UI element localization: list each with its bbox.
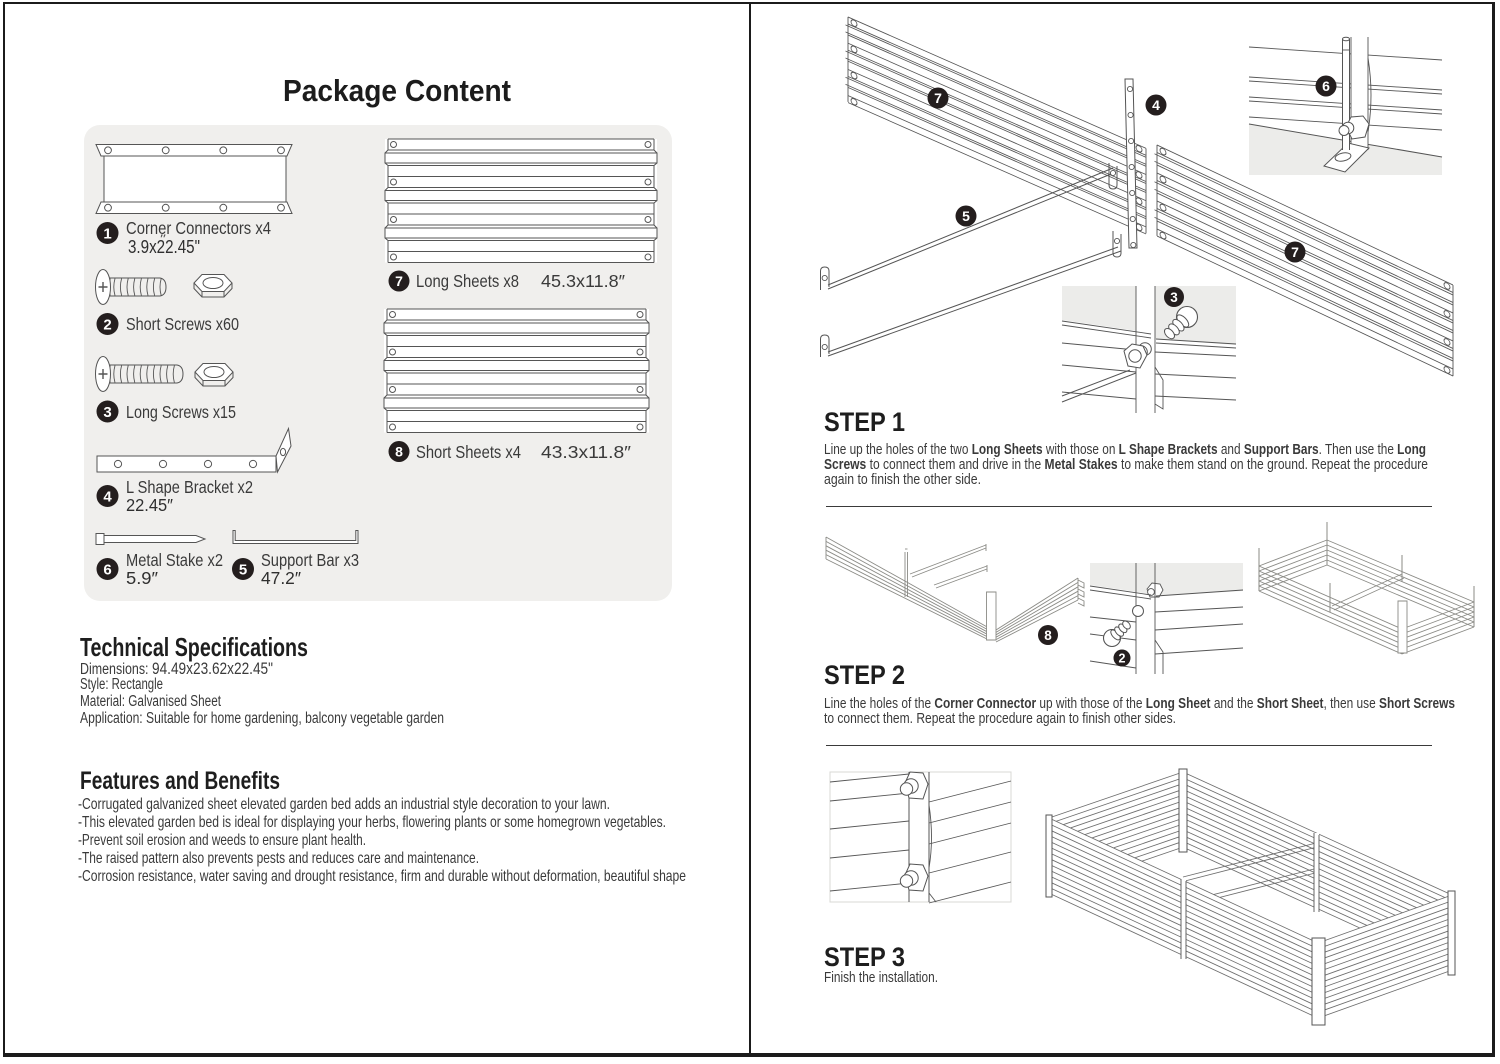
svg-text:3: 3 (103, 404, 111, 421)
svg-text:3: 3 (1170, 290, 1178, 305)
svg-text:1: 1 (103, 225, 111, 242)
svg-text:8: 8 (1044, 628, 1052, 643)
svg-text:8: 8 (395, 444, 403, 460)
svg-text:7: 7 (1291, 244, 1299, 260)
svg-text:4: 4 (103, 488, 112, 505)
svg-text:5: 5 (962, 208, 970, 224)
svg-text:2: 2 (1119, 652, 1126, 666)
svg-text:5: 5 (239, 561, 247, 578)
svg-text:6: 6 (103, 561, 111, 578)
svg-text:4: 4 (1152, 97, 1160, 113)
svg-text:7: 7 (934, 90, 942, 106)
svg-text:7: 7 (395, 273, 403, 289)
svg-text:6: 6 (1322, 78, 1330, 94)
svg-text:2: 2 (103, 316, 111, 333)
